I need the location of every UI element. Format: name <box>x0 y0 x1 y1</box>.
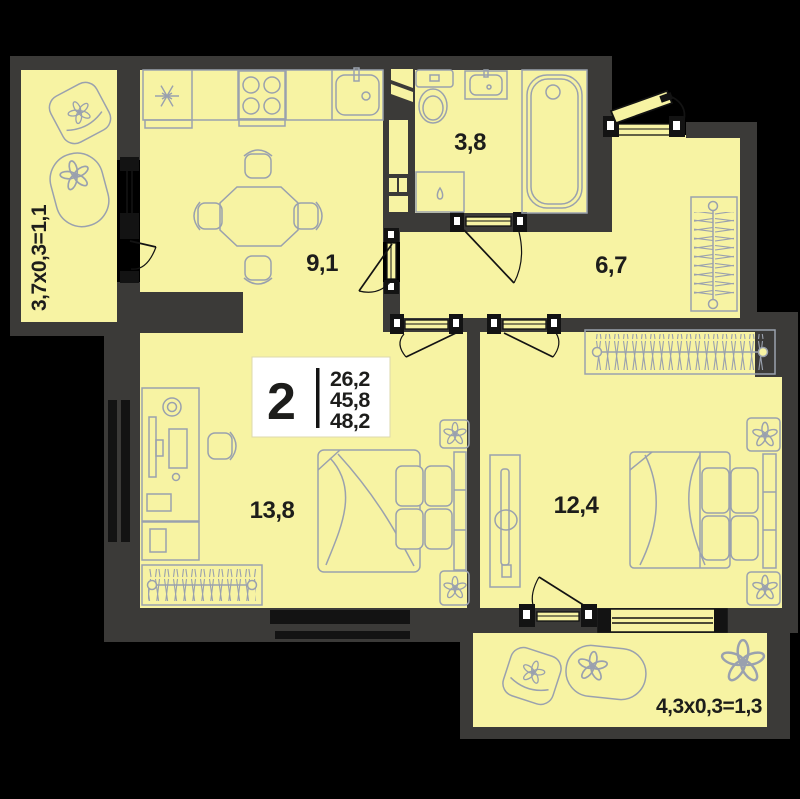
bedroom-right-area-label: 12,4 <box>554 492 600 519</box>
bedroom2-wardrobe-icon <box>585 330 775 374</box>
hallway-area-label: 6,7 <box>595 252 627 279</box>
bedroom-left-area-label: 13,8 <box>250 497 295 524</box>
card-divider <box>316 368 320 428</box>
balcony-left-area-label: 3,7x0,3=1,1 <box>28 204 51 311</box>
balcony-bottom-window-icon <box>598 609 727 632</box>
kitchen-floor <box>140 70 383 292</box>
floor-plan: 9,1 3,8 6,7 13,8 12,4 3,7x0,3=1,1 4,3x0,… <box>0 0 800 799</box>
unit-info-card: 2 26,2 45,8 48,2 <box>252 357 390 437</box>
floor-plan-page: 9,1 3,8 6,7 13,8 12,4 3,7x0,3=1,1 4,3x0,… <box>0 0 800 799</box>
bedroom1-wardrobe-icon <box>142 565 262 605</box>
balcony-bottom-area-label: 4,3x0,3=1,3 <box>656 695 762 718</box>
bathroom-area-label: 3,8 <box>454 129 486 156</box>
hall-wardrobe-icon <box>691 197 737 311</box>
hallway-floor-2 <box>400 232 740 318</box>
unit-rooms-count: 2 <box>267 373 295 431</box>
unit-area-total: 48,2 <box>330 409 370 433</box>
kitchen-area-label: 9,1 <box>306 250 338 277</box>
